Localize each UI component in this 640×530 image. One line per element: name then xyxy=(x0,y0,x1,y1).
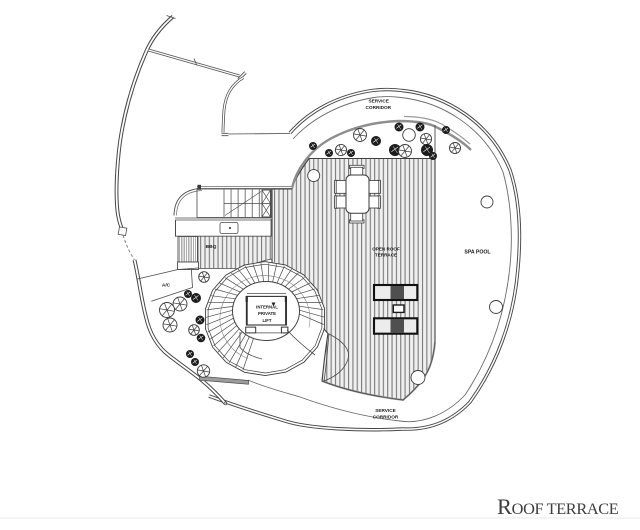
svg-text:INTERNAL: INTERNAL xyxy=(256,305,278,310)
svg-text:SERVICE: SERVICE xyxy=(375,408,396,413)
svg-text:CORRIDOR: CORRIDOR xyxy=(366,105,392,110)
svg-text:A/C: A/C xyxy=(162,282,171,288)
svg-text:SPA POOL: SPA POOL xyxy=(464,250,491,256)
svg-text:CORRIDOR: CORRIDOR xyxy=(373,415,399,420)
svg-text:TERRACE: TERRACE xyxy=(375,253,397,258)
svg-text:SERVICE: SERVICE xyxy=(368,99,389,104)
svg-text:OPEN ROOF: OPEN ROOF xyxy=(372,247,400,252)
svg-text:PRIVATE: PRIVATE xyxy=(258,311,276,316)
svg-text:BBQ: BBQ xyxy=(206,244,217,250)
svg-text:LIFT: LIFT xyxy=(262,318,271,323)
